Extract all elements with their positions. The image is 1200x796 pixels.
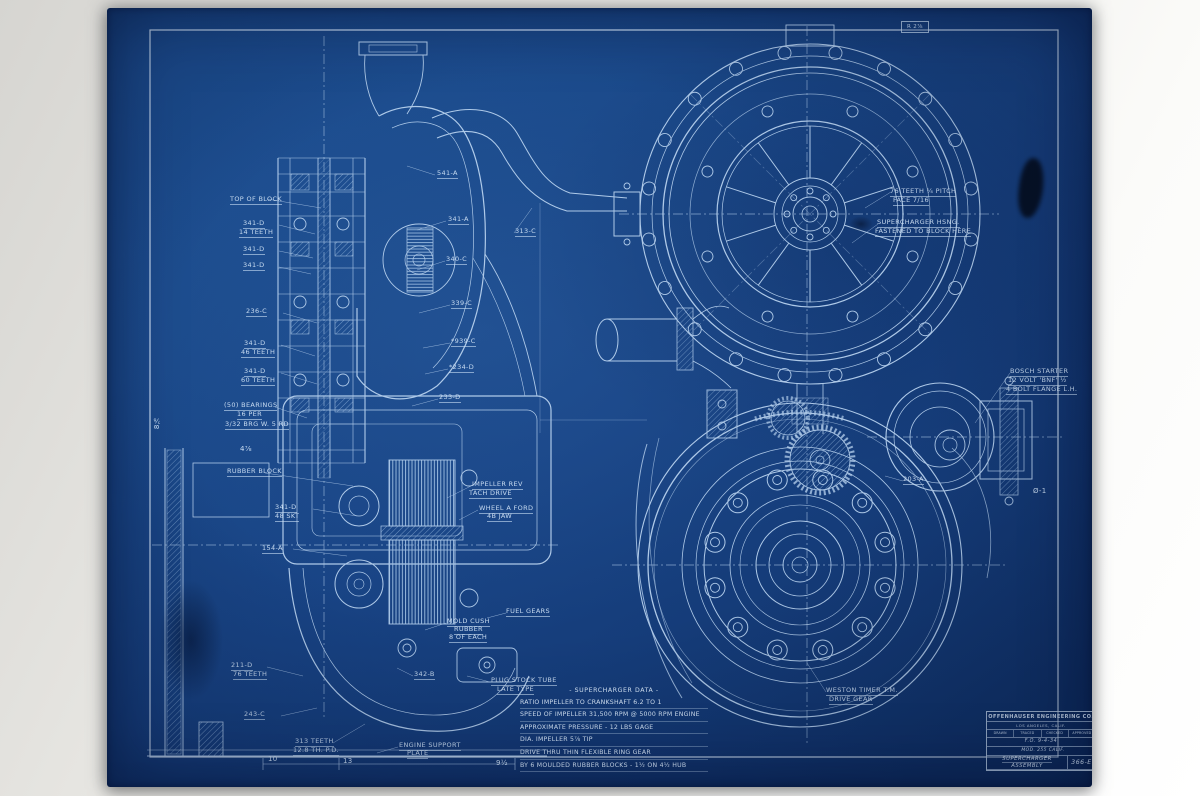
part-label: 10 <box>268 755 278 763</box>
supercharger-data-notes: - SUPERCHARGER DATA -RATIO IMPELLER TO C… <box>520 686 708 773</box>
title-block-header-cell: DRAWN <box>987 730 1014 737</box>
drawing-title-row: SUPERCHARGER ASSEMBLY 366-E <box>987 756 1092 770</box>
title-block-header-cell: APPROVED <box>1069 730 1092 737</box>
title-block-header-cell: TRACED <box>1014 730 1041 737</box>
part-label: 341-D <box>243 262 265 271</box>
part-label: 8 OF EACH <box>449 634 487 643</box>
part-label: 9½ <box>496 759 508 767</box>
note-line: DRIVE THRU THIN FLEXIBLE RING GEAR <box>520 748 708 760</box>
part-label: RUBBER BLOCK <box>227 468 282 477</box>
drawing-number: 366-E <box>1068 759 1092 766</box>
part-label: 4⅞ <box>240 445 252 453</box>
part-label: 154-A <box>262 545 283 554</box>
part-label: 313-C <box>515 228 536 237</box>
part-label: 541-A <box>437 170 458 179</box>
part-label: *939-C <box>451 338 476 347</box>
title-block-headers: DRAWNTRACEDCHECKEDAPPROVED <box>987 730 1092 738</box>
note-line: BY 6 MOULDED RUBBER BLOCKS - 1½ ON 4½ HU… <box>520 761 708 773</box>
part-label: 236-C <box>246 308 267 317</box>
blueprint-sheet: TOP OF BLOCK341-D14 TEETH341-D341-D236-C… <box>107 8 1092 787</box>
note-line: - SUPERCHARGER DATA - <box>520 686 708 697</box>
part-label: 341-A <box>448 216 469 225</box>
centerlines <box>152 26 1065 746</box>
part-label: 12.8 TH. P.D. <box>293 747 339 756</box>
part-label: Ø-1 <box>1033 487 1047 495</box>
title-block-values: F.O. 9-4-34 <box>987 738 1092 747</box>
part-label: TACH DRIVE <box>469 490 512 499</box>
part-label: 14 TEETH <box>239 229 273 238</box>
note-line: SPEED OF IMPELLER 31,500 RPM @ 5000 RPM … <box>520 710 708 722</box>
part-label: 13 <box>343 757 353 765</box>
drawing-title: SUPERCHARGER ASSEMBLY <box>987 756 1068 769</box>
note-line: APPROXIMATE PRESSURE - 12 LBS GAGE <box>520 723 708 735</box>
part-label: 4 BOLT FLANGE L.H. <box>1006 386 1077 395</box>
part-label: 341-D <box>243 246 265 255</box>
note-line: RATIO IMPELLER TO CRANKSHAFT 6.2 TO 1 <box>520 698 708 710</box>
leader-lines <box>265 166 1010 753</box>
housing-contour-left <box>636 444 682 698</box>
part-label: R 2⅞ <box>901 21 929 33</box>
part-label: 4B JAW <box>487 513 512 522</box>
photograph-background: { "document": { "type": "blueprint-engin… <box>0 0 1200 796</box>
title-block: OFFENHAUSER ENGINEERING CO. LOS ANGELES,… <box>986 711 1092 771</box>
part-label: 76 TEETH <box>233 671 267 680</box>
part-label: DRIVE GEAR <box>829 696 873 705</box>
part-label: 243-C <box>244 711 265 720</box>
title-block-header-cell: CHECKED <box>1042 730 1069 737</box>
part-label: FASTENED TO BLOCK HERE <box>875 228 971 237</box>
intake-pipe <box>596 306 731 388</box>
note-line: DIA. IMPELLER 5⅞ TIP <box>520 735 708 747</box>
part-label: 339-C <box>451 300 472 309</box>
part-label: 46 TEETH <box>241 349 275 358</box>
part-label: TOP OF BLOCK <box>230 196 282 205</box>
part-label: PLATE <box>407 750 428 759</box>
supercharger-cross-section <box>147 42 627 770</box>
part-label: 342-B <box>414 671 435 680</box>
part-label: 8⅞ <box>153 416 161 429</box>
starter-motor-view <box>886 377 1032 505</box>
part-label: 60 TEETH <box>241 377 275 386</box>
part-label: *234-D <box>449 364 474 373</box>
company-name: OFFENHAUSER ENGINEERING CO. <box>987 712 1092 722</box>
part-label: FUEL GEARS <box>506 608 550 617</box>
dimension-line <box>263 758 515 770</box>
part-label: FACE 7/16 <box>893 197 929 206</box>
part-label: 340-C <box>446 256 467 265</box>
part-label: 203-A <box>903 476 924 485</box>
company-city: LOS ANGELES, CALIF. <box>987 722 1092 729</box>
part-label: 3/32 BRG W. 5 RD <box>225 421 289 430</box>
part-label: 233-D <box>439 394 461 403</box>
part-label: 48 SKT <box>275 513 299 522</box>
top-mounting-tab <box>786 25 834 46</box>
model-field: MOD. 255 CALIF. <box>987 747 1092 756</box>
sheet-border <box>150 30 1058 757</box>
